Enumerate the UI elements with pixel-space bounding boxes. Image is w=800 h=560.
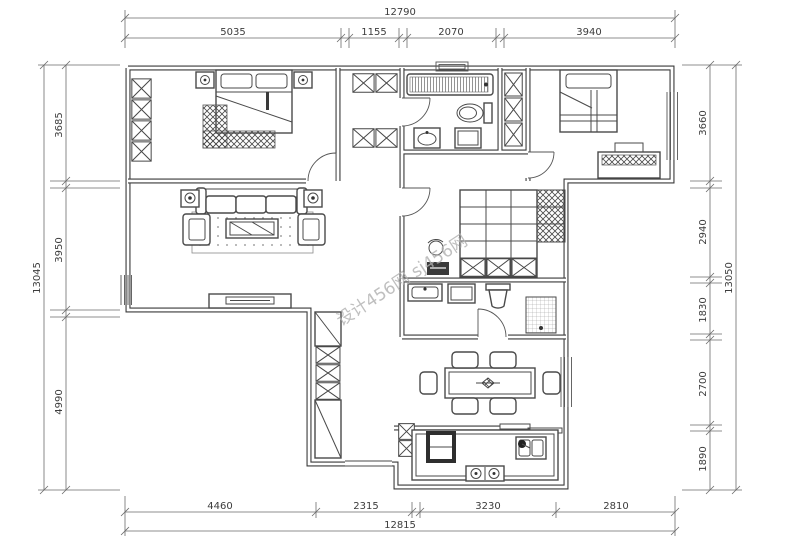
door-bathroom1 <box>402 98 430 126</box>
tatami-side-shelf <box>537 190 565 242</box>
door-bathroom2 <box>478 309 506 337</box>
bedroom2-bed <box>560 70 617 132</box>
toilet-bathroom1 <box>457 103 492 123</box>
floorplan-drawing: 设计456网 sj456网 12790 5035 1155 2070 3940 … <box>0 0 800 560</box>
dim-right-seg5: 1890 <box>698 446 709 471</box>
sink-bathroom1 <box>414 128 440 148</box>
dim-right-seg2: 2940 <box>698 219 709 244</box>
washer-bathroom1 <box>455 128 481 148</box>
armchair-left <box>183 214 210 245</box>
tatami-platform <box>460 190 537 277</box>
side-table-left <box>181 190 199 207</box>
dim-right-seg4: 2700 <box>698 371 709 396</box>
master-bedroom-wardrobe <box>132 79 151 161</box>
dim-left-total: 13045 <box>32 262 43 294</box>
dim-right-total: 13050 <box>724 262 735 294</box>
fridge <box>426 431 456 463</box>
dim-top-total: 12790 <box>384 7 416 18</box>
stove <box>466 466 504 481</box>
dim-top-seg4: 3940 <box>576 27 601 38</box>
door-study <box>402 188 430 216</box>
dining-tall-cabinet <box>315 312 341 458</box>
bedroom2-dresser <box>598 143 660 178</box>
kitchen-sink <box>516 437 546 459</box>
dim-bottom-seg3: 3230 <box>475 501 500 512</box>
dim-bottom-seg4: 2810 <box>603 501 628 512</box>
cabinet-bathroom2 <box>448 284 475 303</box>
floorplan-canvas: 设计456网 sj456网 12790 5035 1155 2070 3940 … <box>0 0 800 560</box>
armchair-right <box>298 214 325 245</box>
corridor-cabinets <box>353 74 397 147</box>
coffee-table <box>226 219 278 238</box>
sink-bathroom2 <box>408 284 442 301</box>
door-master-bedroom <box>308 153 336 181</box>
dimension-chain-top: 12790 5035 1155 2070 3940 <box>121 7 679 48</box>
dim-bottom-total: 12815 <box>384 520 416 531</box>
toilet-bathroom2 <box>486 284 510 308</box>
dim-bottom-seg1: 4460 <box>207 501 232 512</box>
door-bedroom2 <box>528 152 554 178</box>
entry-threshold <box>345 461 392 466</box>
dim-right-seg1: 3660 <box>698 110 709 135</box>
hall-closet <box>505 73 522 146</box>
dim-top-seg1: 5035 <box>220 27 245 38</box>
shower-area <box>526 297 556 333</box>
side-table-right <box>304 190 322 207</box>
dim-left-seg2: 3950 <box>54 237 65 262</box>
dim-top-seg3: 2070 <box>438 27 463 38</box>
dimension-chain-bottom: 4460 2315 3230 2810 12815 <box>121 496 679 536</box>
sofa <box>196 188 307 214</box>
dim-left-seg3: 4990 <box>54 389 65 414</box>
dining-table <box>445 368 535 398</box>
dim-left-seg1: 3685 <box>54 112 65 137</box>
tv-cabinet <box>209 294 291 308</box>
bathtub <box>407 74 493 95</box>
dimension-chain-left: 3685 3950 4990 13045 <box>32 61 120 494</box>
dim-bottom-seg2: 2315 <box>353 501 378 512</box>
dimension-chain-right: 3660 2940 1830 2700 1890 13050 <box>682 61 742 494</box>
dim-top-seg2: 1155 <box>361 27 386 38</box>
dim-right-seg3: 1830 <box>698 297 709 322</box>
